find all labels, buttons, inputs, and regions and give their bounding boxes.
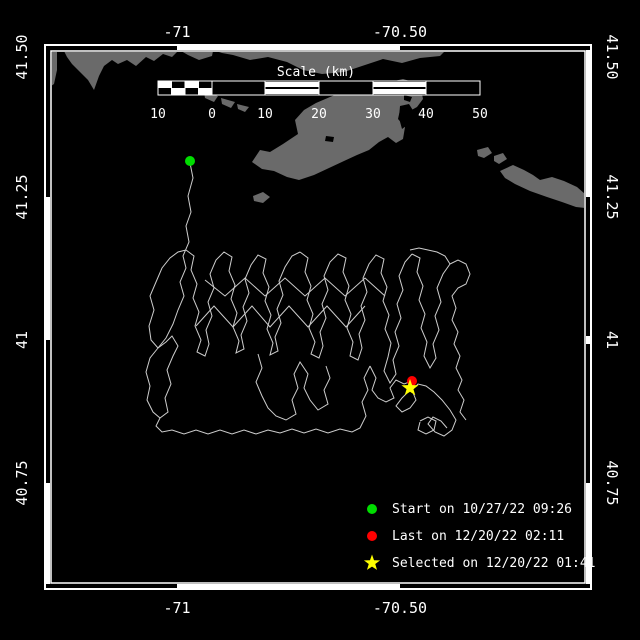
track-line[interactable] (450, 260, 470, 420)
axis-label-top: -71 (163, 23, 190, 41)
legend-start-marker (367, 504, 377, 514)
axis-label-left: 41.25 (13, 174, 31, 219)
land-polygon (494, 153, 507, 164)
land-polygon (253, 192, 270, 203)
land-polygon (237, 104, 249, 112)
map-canvas[interactable]: Scale (km) 1001020304050 -71-70.50-71-70… (0, 0, 640, 640)
legend-selected-label: Selected on 12/20/22 01:41 (392, 556, 596, 571)
legend-start-label: Start on 10/27/22 09:26 (392, 502, 572, 517)
axis-label-right: 41.50 (603, 34, 621, 79)
land-polygon (51, 51, 57, 86)
scalebar: Scale (km) 1001020304050 (150, 65, 488, 122)
scalebar-title: Scale (km) (277, 65, 355, 80)
track-line[interactable] (418, 417, 436, 434)
track-line[interactable] (205, 278, 385, 296)
land-polygon (500, 165, 585, 208)
scalebar-checker-cell (199, 81, 213, 88)
scalebar-checker-cell (199, 88, 213, 95)
scalebar-checker-cell (172, 88, 186, 95)
scalebar-tick-label: 10 (150, 107, 166, 122)
axis-label-left: 41.50 (13, 34, 31, 79)
axis-label-right: 41 (603, 331, 621, 349)
track-line[interactable] (410, 248, 450, 368)
scalebar-checker-cell (185, 81, 199, 88)
scalebar-tick-label: 50 (472, 107, 488, 122)
legend-last-label: Last on 12/20/22 02:11 (392, 529, 564, 544)
axis-label-bottom: -71 (163, 599, 190, 617)
scalebar-tick-label: 0 (208, 107, 216, 122)
scalebar-section-stripe (373, 87, 426, 89)
pond-polygon (325, 136, 334, 142)
track-layer[interactable] (146, 163, 470, 436)
legend-selected-marker (364, 554, 380, 569)
axis-label-left: 40.75 (13, 460, 31, 505)
axis-label-top: -70.50 (373, 23, 427, 41)
track-line[interactable] (146, 336, 178, 418)
scalebar-tick-label: 40 (418, 107, 434, 122)
legend-last-marker (367, 531, 377, 541)
scalebar-tick-label: 10 (257, 107, 273, 122)
marker-layer[interactable] (185, 156, 419, 395)
scalebar-checker-cell (172, 81, 186, 88)
land-polygon (181, 51, 213, 60)
axis-label-right: 40.75 (603, 460, 621, 505)
axis-label-right: 41.25 (603, 174, 621, 219)
scalebar-checker-cell (185, 88, 199, 95)
scalebar-checker-cell (158, 81, 172, 88)
track-line[interactable] (256, 354, 330, 420)
scalebar-section-stripe (265, 87, 319, 89)
track-line[interactable] (149, 163, 193, 348)
legend: Start on 10/27/22 09:26Last on 12/20/22 … (364, 502, 596, 571)
land-polygon (477, 147, 492, 158)
land-polygon (221, 98, 235, 108)
axis-label-left: 41 (13, 331, 31, 349)
axis-label-bottom: -70.50 (373, 599, 427, 617)
start-marker[interactable] (185, 156, 195, 166)
track-map-window: { "colors": { "background": "#000000", "… (0, 0, 640, 640)
scalebar-checker-cell (158, 88, 172, 95)
scalebar-tick-label: 30 (365, 107, 381, 122)
track-line[interactable] (186, 250, 300, 356)
scalebar-tick-label: 20 (311, 107, 327, 122)
track-line[interactable] (156, 366, 370, 434)
